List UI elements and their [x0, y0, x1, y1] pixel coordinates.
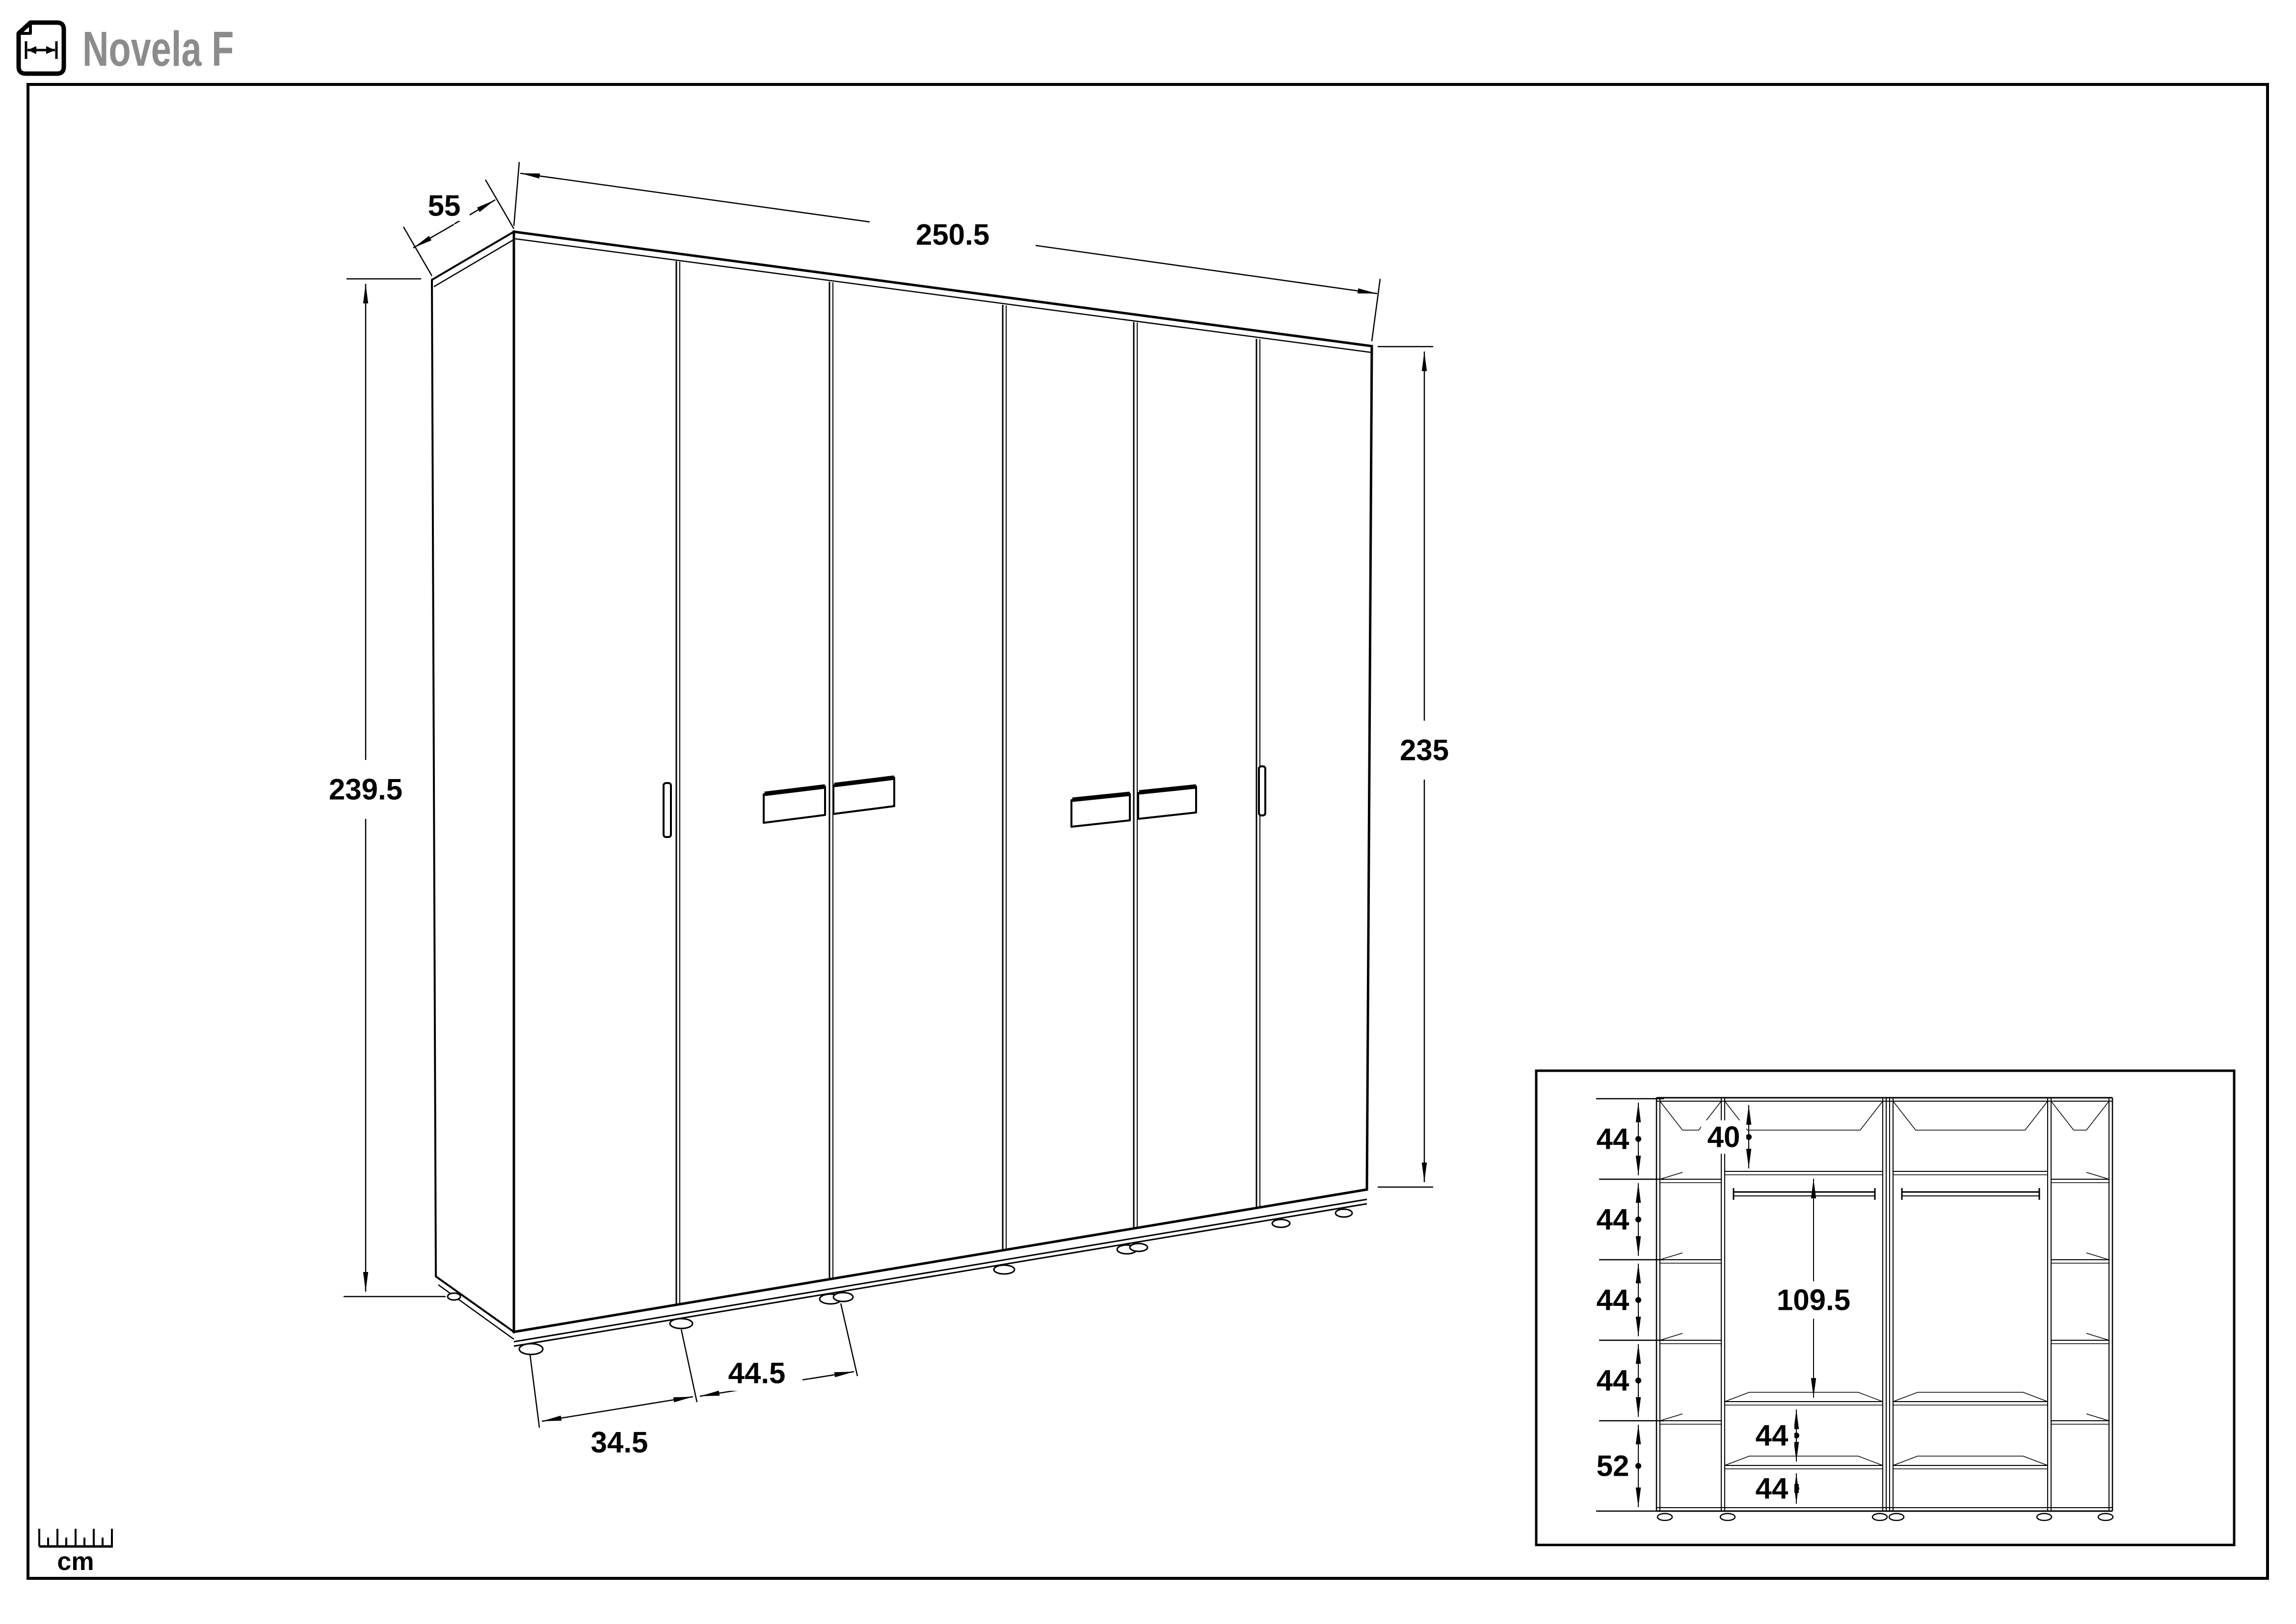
handle-door6 — [1259, 766, 1265, 815]
wardrobe-side-panel — [432, 232, 514, 1339]
header-icon — [19, 23, 64, 74]
inset-feet — [1657, 1514, 2113, 1520]
arrow-right-icon — [46, 46, 55, 54]
arrow-left-icon — [27, 46, 36, 54]
dim-door-left-label: 34.5 — [591, 1426, 648, 1459]
unit-label: cm — [57, 1547, 94, 1576]
dim-height-right-label: 235 — [1400, 734, 1449, 767]
page-title: Novela F — [82, 21, 234, 77]
drawing-canvas: Novela F — [0, 0, 2296, 1624]
inset-bottom-label-1: 44 — [1756, 1419, 1789, 1452]
inset-section-label-2: 44 — [1597, 1203, 1629, 1236]
dim-height-left-label: 239.5 — [329, 773, 402, 806]
wardrobe-drawing — [432, 232, 1372, 1354]
dim-width-label: 250.5 — [916, 218, 989, 251]
inset-section-label-4: 44 — [1597, 1364, 1629, 1397]
inset-section-label-3: 44 — [1597, 1284, 1629, 1317]
wardrobe-back-foot — [448, 1293, 460, 1300]
inset-top-shelf-label: 40 — [1708, 1121, 1740, 1154]
inset-hanging-label: 109.5 — [1777, 1284, 1850, 1317]
inset-section-label-5: 52 — [1597, 1450, 1629, 1483]
page: Novela F — [0, 0, 2296, 1624]
wardrobe-front-face — [514, 232, 1372, 1346]
dim-door-center-label: 44.5 — [728, 1357, 786, 1390]
dim-depth-label: 55 — [428, 189, 461, 222]
inset-section-label-1: 44 — [1597, 1123, 1629, 1156]
handle-door1 — [664, 783, 671, 837]
inset-bottom-label-2: 44 — [1756, 1472, 1789, 1505]
inset-panel-border — [1536, 1071, 2234, 1545]
